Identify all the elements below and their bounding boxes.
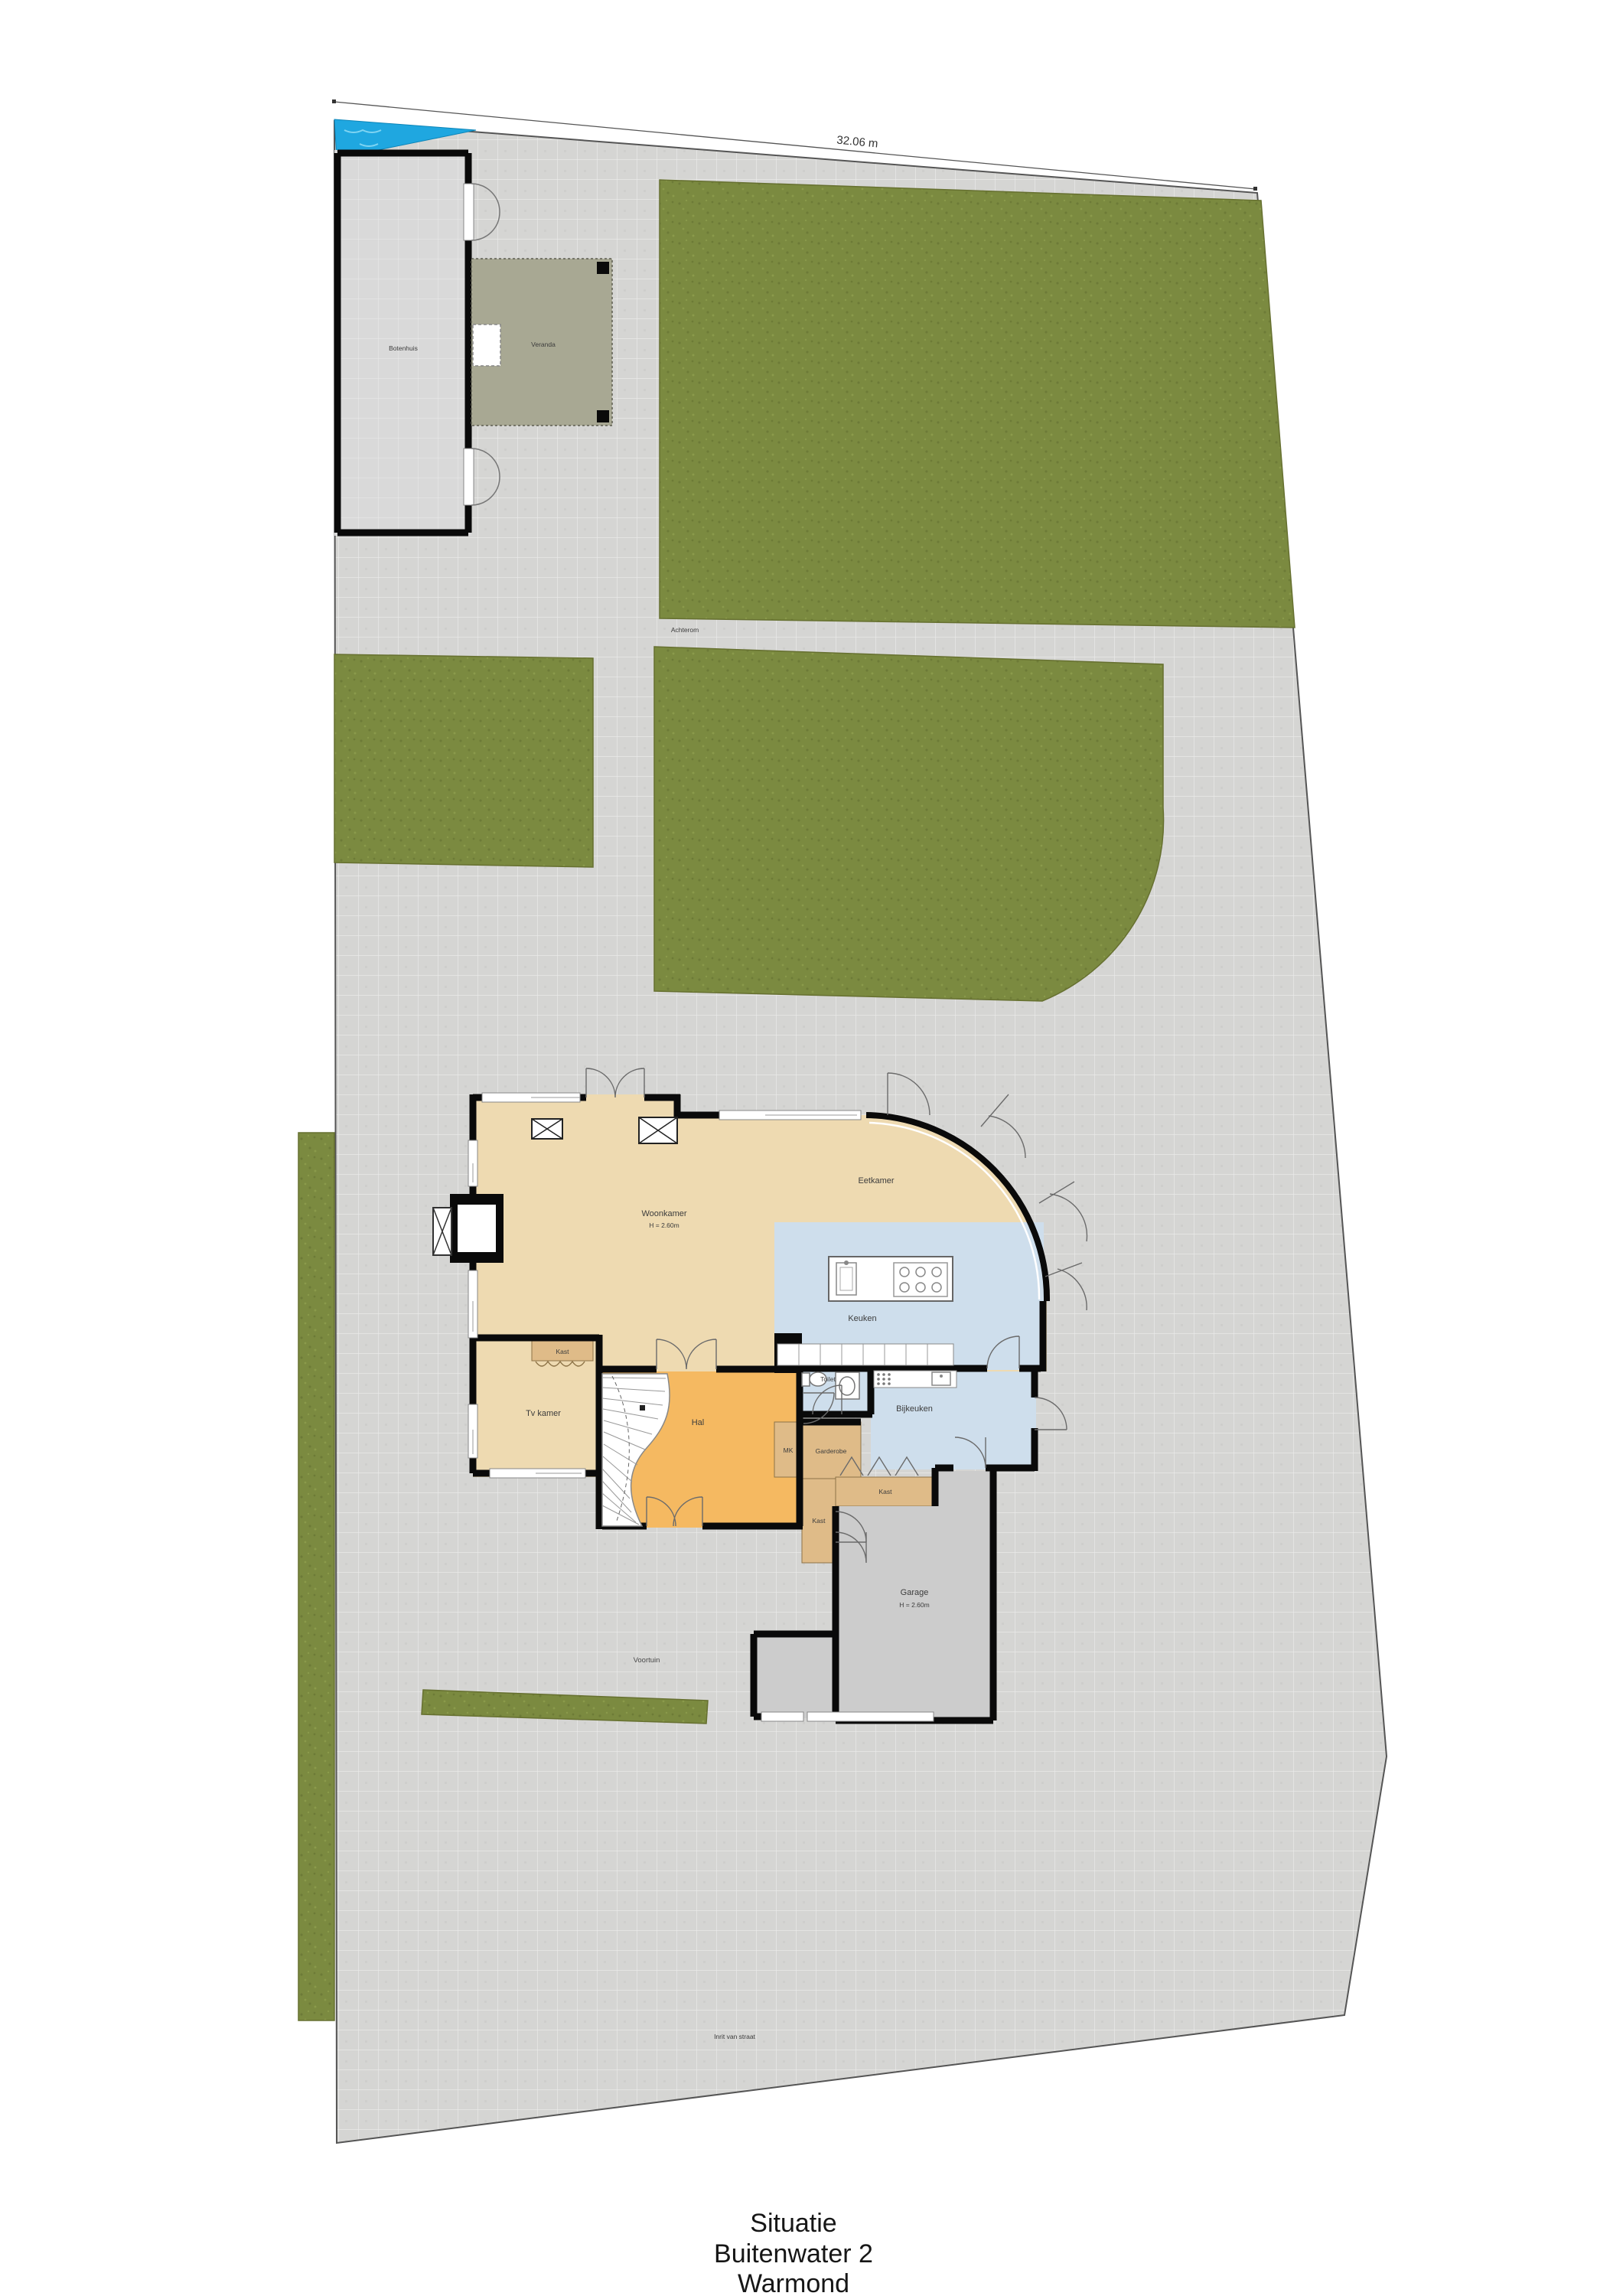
room-label-eetkamer: Eetkamer: [858, 1176, 894, 1186]
inrit-label: Inrit van straat: [714, 2033, 755, 2040]
room-label-toilet: Toilet: [820, 1375, 836, 1383]
veranda-chimney: [473, 325, 500, 366]
hedge-west: [298, 1133, 334, 2020]
closet-label-kast-tv: Kast: [556, 1348, 569, 1355]
title-line-3: Warmond: [738, 2269, 849, 2296]
botenhuis-label: Botenhuis: [389, 344, 418, 352]
room-height-woonkamer: H = 2.60m: [649, 1221, 679, 1229]
room-height-garage: H = 2.60m: [899, 1601, 929, 1609]
title-line-2: Buitenwater 2: [714, 2239, 873, 2268]
room-label-keuken: Keuken: [848, 1314, 876, 1323]
lawn-mid-left: [334, 654, 593, 867]
closet-label-kast-v: Kast: [812, 1517, 826, 1525]
title-block: Situatie Buitenwater 2 Warmond: [714, 2209, 873, 2296]
bijkeuken-counter: [874, 1371, 957, 1388]
title-line-1: Situatie: [750, 2209, 836, 2238]
room-label-woonkamer: Woonkamer: [641, 1209, 686, 1218]
room-label-tvkamer: Tv kamer: [526, 1409, 561, 1418]
site-plan-drawing: Botenhuis Veranda Achterom Voortuin Inri…: [0, 0, 1623, 2296]
room-label-garderobe: Garderobe: [816, 1447, 847, 1455]
closet-label-kast-h: Kast: [878, 1488, 892, 1495]
veranda-post-se: [597, 410, 609, 422]
veranda-post-ne: [597, 262, 609, 274]
lawn-mid-right: [654, 647, 1164, 1001]
achterom-label: Achterom: [671, 626, 699, 634]
lawn-north: [660, 180, 1295, 628]
room-label-bijkeuken: Bijkeuken: [896, 1404, 933, 1414]
veranda: Veranda: [471, 259, 612, 426]
garage-annex: [754, 1634, 836, 1718]
room-label-garage: Garage: [901, 1588, 929, 1597]
kitchen-island: [829, 1257, 953, 1301]
voortuin-label: Voortuin: [634, 1656, 660, 1665]
dimension-label: 32.06 m: [836, 134, 879, 151]
situatie-plan-page: Botenhuis Veranda Achterom Voortuin Inri…: [0, 0, 1623, 2296]
kitchen-counter: [777, 1344, 953, 1365]
veranda-label: Veranda: [531, 341, 556, 348]
room-label-hal: Hal: [692, 1418, 705, 1427]
room-label-mk: MK: [784, 1446, 794, 1454]
